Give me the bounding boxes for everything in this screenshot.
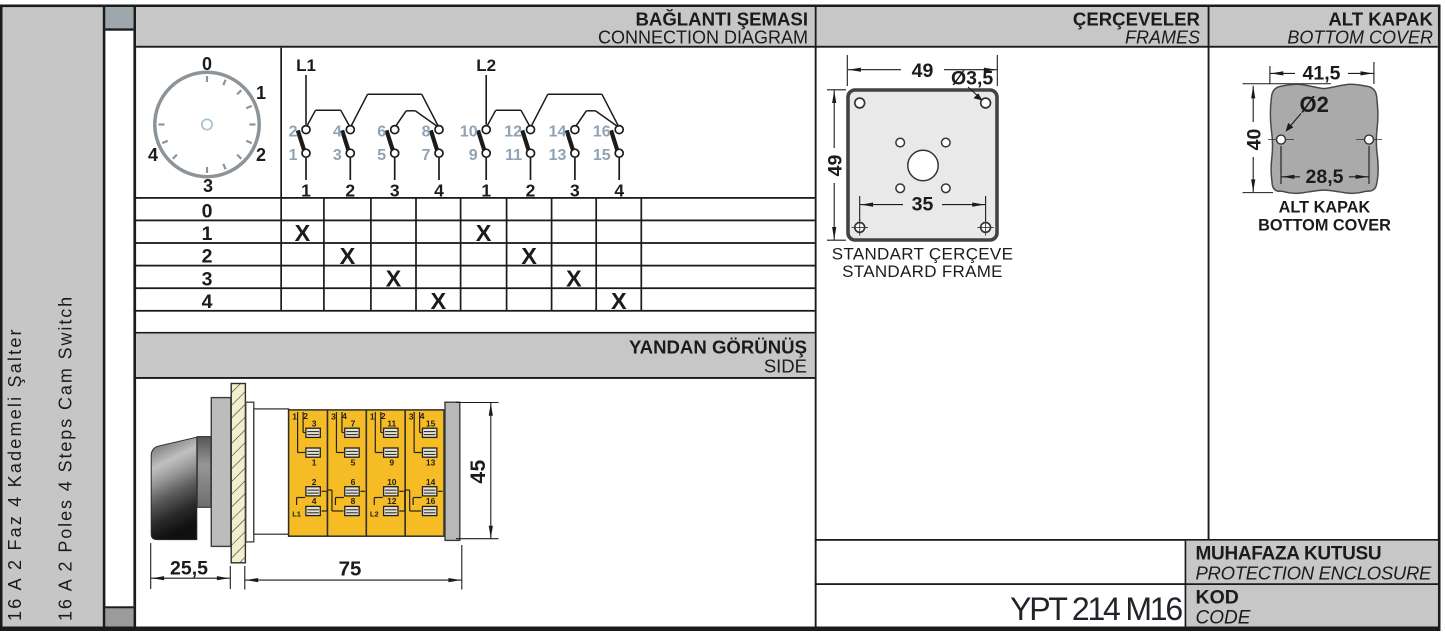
svg-text:Ø2: Ø2: [1300, 92, 1329, 117]
svg-text:PROTECTION ENCLOSURE: PROTECTION ENCLOSURE: [1196, 563, 1433, 584]
svg-text:3: 3: [331, 412, 336, 422]
svg-text:16 A 2 Poles 4 Steps Cam Switc: 16 A 2 Poles 4 Steps Cam Switch: [56, 295, 76, 621]
svg-text:14: 14: [426, 477, 436, 487]
svg-text:4: 4: [202, 291, 213, 313]
svg-text:CODE: CODE: [1196, 608, 1251, 629]
svg-text:11: 11: [387, 419, 396, 429]
svg-text:2: 2: [312, 477, 317, 487]
svg-text:X: X: [295, 220, 311, 246]
svg-text:13: 13: [549, 147, 567, 164]
svg-text:16 A 2 Faz 4 Kademeli Şalter: 16 A 2 Faz 4 Kademeli Şalter: [5, 327, 25, 621]
svg-text:3: 3: [409, 412, 414, 422]
svg-text:75: 75: [339, 558, 362, 581]
svg-text:40: 40: [1244, 129, 1266, 151]
svg-text:11: 11: [505, 147, 522, 164]
svg-text:12: 12: [504, 124, 522, 141]
svg-text:14: 14: [549, 124, 567, 141]
svg-text:4: 4: [420, 411, 425, 421]
svg-text:7: 7: [422, 147, 431, 164]
svg-text:0: 0: [202, 54, 212, 74]
svg-text:4: 4: [342, 411, 347, 421]
svg-text:1: 1: [256, 83, 266, 103]
svg-text:12: 12: [387, 496, 397, 506]
svg-text:BOTTOM COVER: BOTTOM COVER: [1287, 28, 1433, 48]
svg-text:35: 35: [912, 194, 934, 216]
svg-text:6: 6: [351, 477, 356, 487]
svg-text:8: 8: [422, 124, 431, 141]
svg-text:YANDAN GÖRÜNÜŞ: YANDAN GÖRÜNÜŞ: [629, 337, 807, 358]
svg-text:1: 1: [312, 458, 317, 468]
svg-text:2: 2: [202, 246, 213, 268]
svg-text:X: X: [521, 243, 537, 269]
svg-text:3: 3: [333, 147, 342, 164]
svg-text:5: 5: [351, 458, 356, 468]
svg-text:4: 4: [148, 145, 158, 165]
svg-text:BAĞLANTI ŞEMASI: BAĞLANTI ŞEMASI: [635, 9, 808, 30]
svg-text:STANDART ÇERÇEVE: STANDART ÇERÇEVE: [832, 245, 1013, 264]
svg-text:49: 49: [912, 60, 934, 82]
svg-text:STANDARD FRAME: STANDARD FRAME: [842, 262, 1003, 281]
svg-text:YPT 214 M16: YPT 214 M16: [1010, 591, 1182, 627]
svg-text:15: 15: [426, 419, 436, 429]
svg-text:9: 9: [469, 147, 478, 164]
svg-text:0: 0: [202, 201, 213, 223]
svg-text:L2: L2: [476, 56, 496, 75]
svg-text:3: 3: [312, 419, 317, 429]
svg-text:3: 3: [202, 268, 213, 290]
svg-text:1: 1: [370, 412, 375, 422]
svg-text:10: 10: [460, 124, 478, 141]
svg-text:4: 4: [333, 124, 342, 141]
svg-text:X: X: [476, 220, 492, 246]
svg-text:6: 6: [377, 124, 386, 141]
svg-text:X: X: [340, 243, 356, 269]
svg-text:ÇERÇEVELER: ÇERÇEVELER: [1073, 9, 1201, 30]
svg-text:4: 4: [312, 496, 317, 506]
svg-text:10: 10: [387, 477, 397, 487]
svg-text:KOD: KOD: [1196, 587, 1239, 609]
svg-text:2: 2: [381, 411, 386, 421]
svg-text:Ø3,5: Ø3,5: [951, 68, 993, 90]
svg-text:45: 45: [467, 459, 490, 483]
svg-text:2: 2: [256, 145, 266, 165]
svg-text:1: 1: [289, 147, 298, 164]
svg-text:9: 9: [389, 458, 394, 468]
svg-text:ALT KAPAK: ALT KAPAK: [1328, 9, 1433, 30]
svg-text:L1: L1: [292, 510, 301, 519]
svg-text:X: X: [386, 265, 402, 291]
svg-text:X: X: [566, 265, 582, 291]
svg-text:1: 1: [292, 412, 297, 422]
svg-text:16: 16: [426, 496, 436, 506]
svg-text:2: 2: [289, 124, 298, 141]
svg-text:5: 5: [377, 147, 386, 164]
svg-text:15: 15: [593, 147, 611, 164]
svg-text:16: 16: [593, 124, 611, 141]
svg-text:8: 8: [351, 496, 356, 506]
svg-text:41,5: 41,5: [1303, 63, 1341, 85]
svg-text:13: 13: [426, 458, 436, 468]
svg-text:SIDE: SIDE: [764, 356, 807, 377]
svg-text:49: 49: [825, 155, 847, 177]
svg-text:L2: L2: [370, 510, 379, 519]
svg-text:CONNECTION DIAGRAM: CONNECTION DIAGRAM: [598, 28, 808, 48]
svg-text:X: X: [430, 288, 446, 314]
svg-text:ALT KAPAK: ALT KAPAK: [1279, 199, 1371, 217]
svg-text:28,5: 28,5: [1306, 166, 1344, 188]
svg-text:2: 2: [303, 411, 308, 421]
svg-text:25,5: 25,5: [170, 558, 208, 580]
svg-text:1: 1: [202, 223, 213, 245]
svg-text:MUHAFAZA KUTUSU: MUHAFAZA KUTUSU: [1196, 544, 1382, 565]
svg-text:FRAMES: FRAMES: [1125, 28, 1200, 48]
svg-text:7: 7: [351, 419, 356, 429]
svg-text:3: 3: [203, 176, 213, 196]
svg-text:L1: L1: [296, 56, 316, 75]
svg-text:X: X: [611, 288, 627, 314]
svg-text:BOTTOM COVER: BOTTOM COVER: [1258, 217, 1391, 235]
